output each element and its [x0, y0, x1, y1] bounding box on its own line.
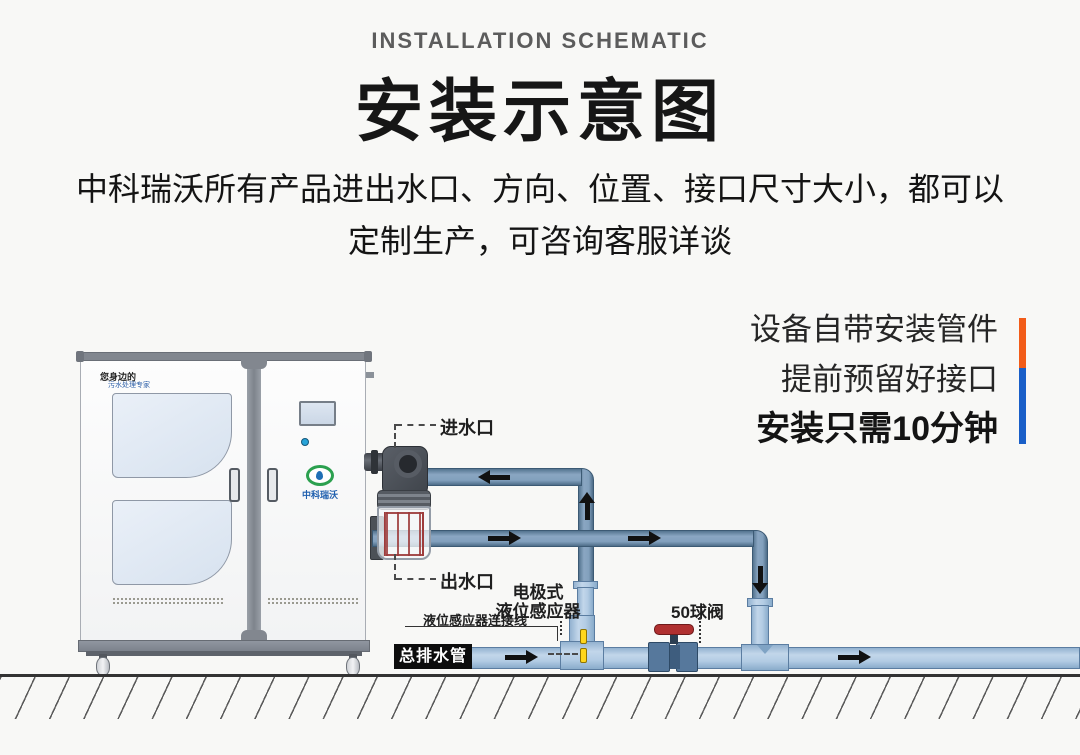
promo-block: 设备自带安装管件 提前预留好接口 安装只需10分钟: [520, 312, 998, 449]
machine-window-lower: [112, 500, 232, 585]
sensor-electrode-upper: [580, 629, 587, 644]
machine-top-cap-left: [76, 351, 84, 362]
main-drain-label: 总排水管: [394, 644, 472, 669]
machine-top-bar: [78, 352, 370, 361]
sensor-cable-line: [557, 626, 558, 641]
vent-perforation-right: [268, 598, 358, 604]
page-title: 安装示意图: [0, 56, 1080, 155]
sensor-pipe-dash: [548, 653, 578, 655]
subtitle-line-1: 中科瑞沃所有产品进出水口、方向、位置、接口尺寸大小，都可以: [0, 163, 1080, 215]
installation-schematic-page: INSTALLATION SCHEMATIC 安装示意图 中科瑞沃所有产品进出水…: [0, 0, 1080, 755]
inlet-leader-line: [394, 424, 396, 448]
brand-tagline-2: 污水处理专家: [108, 380, 150, 390]
inlet-label: 进水口: [440, 414, 494, 440]
sensor-cable-line: [405, 626, 557, 627]
water-drop-icon: [316, 471, 323, 480]
brand-logo-text: 中科瑞沃: [296, 488, 344, 501]
right-door-handle: [267, 468, 278, 502]
promo-line-1: 设备自带安装管件: [520, 312, 998, 348]
outlet-leader-line: [394, 554, 396, 580]
promo-bar-bottom: [1019, 368, 1026, 444]
inlet-opening: [394, 450, 422, 478]
promo-bar-top: [1019, 318, 1026, 368]
valve-body: [670, 645, 680, 669]
left-door-handle: [229, 468, 240, 502]
power-button: [301, 438, 309, 446]
eyebrow-heading: INSTALLATION SCHEMATIC: [0, 28, 1080, 54]
subtitle: 中科瑞沃所有产品进出水口、方向、位置、接口尺寸大小，都可以 定制生产，可咨询客服…: [0, 163, 1080, 267]
divider-flare-top: [241, 360, 267, 369]
sensor-label-line-1: 电极式: [488, 583, 588, 602]
inlet-flange: [371, 450, 378, 474]
machine-door-divider: [247, 360, 261, 638]
outlet-label: 出水口: [440, 568, 494, 594]
subtitle-line-2: 定制生产，可咨询客服详谈: [0, 215, 1080, 267]
tee-notch: [757, 645, 773, 654]
inlet-leader-line: [396, 424, 436, 426]
machine-window-upper: [112, 393, 232, 478]
filter-basket: [384, 512, 424, 556]
promo-line-3: 安装只需10分钟: [520, 409, 998, 449]
sensor-electrode-lower: [580, 648, 587, 663]
sensor-leader-line: [560, 621, 562, 635]
machine-base-recess: [86, 651, 362, 656]
valve-handle: [654, 624, 694, 635]
vent-perforation-left: [113, 598, 223, 604]
side-knob: [366, 372, 374, 378]
machine-top-cap-right: [364, 351, 372, 362]
ground-hatching: [0, 677, 1080, 719]
outlet-leader-line: [396, 578, 436, 580]
valve-flange-left: [648, 642, 670, 672]
ball-valve-label: 50球阀: [671, 598, 724, 623]
divider-flare-bottom: [241, 630, 267, 640]
promo-line-2: 提前预留好接口: [520, 362, 998, 398]
ball-valve-leader-line: [699, 617, 701, 643]
control-display-panel: [299, 401, 336, 426]
